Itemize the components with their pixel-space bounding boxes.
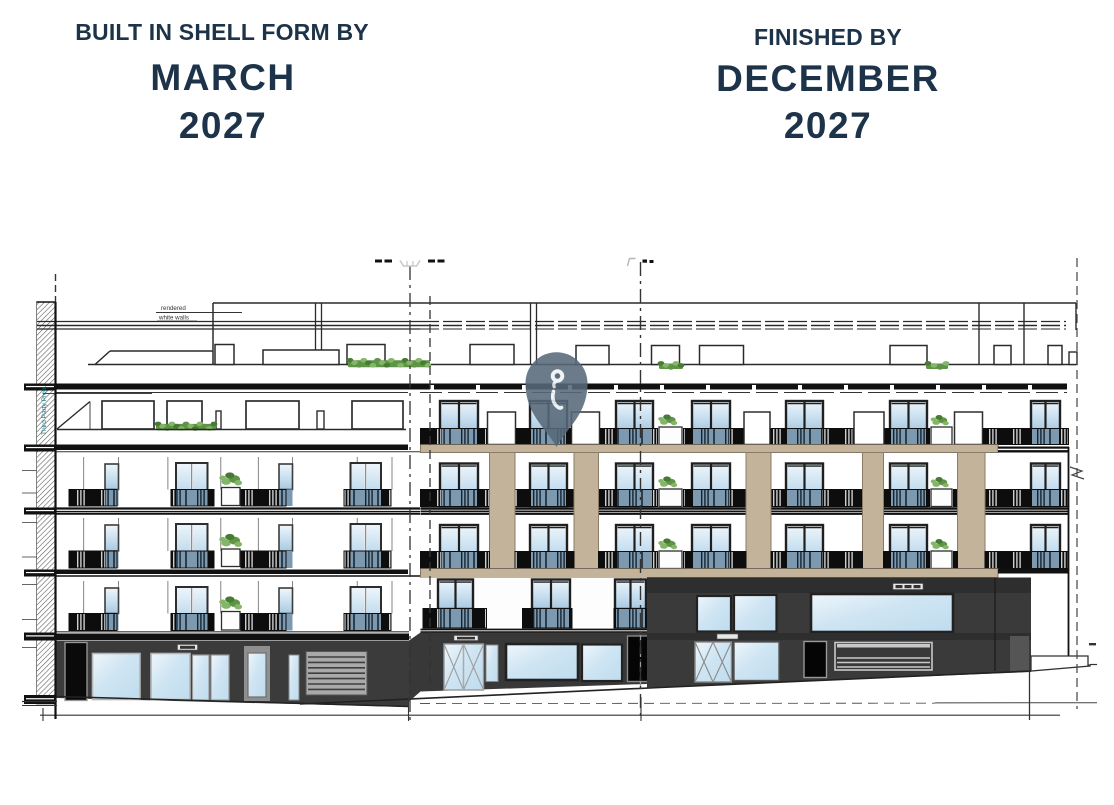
svg-text:white walls: white walls <box>158 315 189 322</box>
svg-text:Third Party Prop.: Third Party Prop. <box>41 386 48 435</box>
svg-text:rendered: rendered <box>161 305 186 312</box>
